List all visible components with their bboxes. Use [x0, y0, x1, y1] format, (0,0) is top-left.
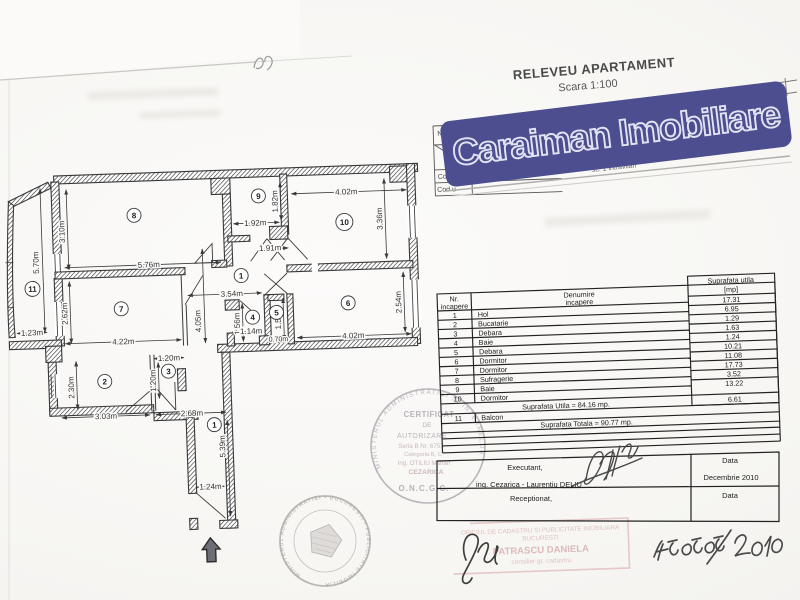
svg-text:0.70m: 0.70m [269, 336, 289, 344]
svg-text:BUCURESTI: BUCURESTI [522, 534, 559, 542]
svg-text:3.54m: 3.54m [221, 289, 244, 299]
svg-text:consilier gr. cadastru: consilier gr. cadastru [511, 557, 571, 566]
svg-text:Decembrie 2010: Decembrie 2010 [703, 473, 758, 482]
svg-text:3.52: 3.52 [727, 369, 741, 378]
svg-text:incapere: incapere [441, 301, 469, 311]
svg-text:incapere: incapere [565, 297, 593, 307]
svg-text:Categoria B, C: Categoria B, C [404, 452, 442, 458]
svg-text:Debara: Debara [479, 346, 503, 356]
svg-text:PATRASCU DANIELA: PATRASCU DANIELA [493, 543, 590, 557]
svg-text:Data: Data [722, 456, 739, 465]
svg-text:1: 1 [453, 311, 457, 320]
svg-text:3.10m: 3.10m [57, 220, 67, 243]
svg-text:7: 7 [455, 367, 459, 376]
svg-text:CEZARICA: CEZARICA [408, 469, 443, 476]
svg-text:8: 8 [455, 376, 459, 385]
svg-text:1.91m: 1.91m [259, 243, 282, 253]
svg-text:1.20m: 1.20m [158, 353, 181, 363]
svg-text:DE: DE [422, 422, 432, 429]
svg-text:5.39m: 5.39m [218, 435, 228, 458]
svg-text:2.68m: 2.68m [181, 409, 204, 419]
svg-text:1.63: 1.63 [725, 323, 739, 332]
svg-text:1.82m: 1.82m [270, 190, 280, 213]
svg-text:13.22: 13.22 [725, 378, 743, 388]
svg-text:17.73: 17.73 [724, 360, 742, 370]
svg-text:4.02m: 4.02m [335, 187, 358, 197]
svg-text:Suprafata Totala = 90.77 mp.: Suprafata Totala = 90.77 mp. [540, 417, 633, 429]
svg-text:Bucatarie: Bucatarie [478, 318, 509, 328]
svg-text:Baie: Baie [480, 384, 495, 393]
svg-text:1.14m: 1.14m [240, 326, 263, 336]
svg-text:10: 10 [454, 394, 462, 403]
svg-text:11.08: 11.08 [724, 350, 742, 360]
svg-text:5: 5 [454, 348, 458, 357]
svg-text:4.22m: 4.22m [112, 337, 135, 347]
svg-text:2.54m: 2.54m [394, 291, 404, 314]
svg-text:4.05m: 4.05m [193, 310, 203, 333]
svg-text:Seria B Nr. 6757: Seria B Nr. 6757 [398, 443, 444, 450]
svg-text:Executant,: Executant, [507, 463, 542, 472]
svg-text:3: 3 [453, 329, 457, 338]
svg-text:5.76m: 5.76m [137, 260, 160, 270]
svg-text:Data: Data [722, 491, 739, 500]
svg-text:Baie: Baie [479, 337, 494, 346]
svg-text:Hol: Hol [478, 310, 489, 319]
svg-text:3.36m: 3.36m [375, 207, 385, 230]
svg-text:6.61: 6.61 [728, 394, 742, 403]
svg-text:1.24m: 1.24m [199, 482, 222, 492]
svg-text:Balcon: Balcon [481, 412, 503, 422]
svg-text:2: 2 [453, 320, 457, 329]
svg-text:2.62m: 2.62m [60, 302, 70, 325]
svg-text:17.31: 17.31 [722, 295, 740, 305]
svg-text:4.02m: 4.02m [342, 331, 365, 341]
svg-text:10: 10 [340, 218, 350, 227]
svg-text:6: 6 [454, 357, 458, 366]
svg-text:1.20m: 1.20m [148, 369, 158, 392]
svg-text:Sufragerie: Sufragerie [480, 374, 513, 384]
svg-text:4: 4 [454, 339, 458, 348]
svg-text:9: 9 [455, 385, 459, 394]
svg-text:5.70m: 5.70m [31, 251, 41, 274]
svg-text:AUTORIZARE: AUTORIZARE [397, 433, 447, 440]
svg-text:11: 11 [454, 414, 462, 423]
svg-text:1.23m: 1.23m [21, 328, 44, 338]
svg-text:Suprafata Utila = 84.16 mp.: Suprafata Utila = 84.16 mp. [522, 399, 610, 411]
svg-text:ing. Cezarica - Laurentiu DELI: ing. Cezarica - Laurentiu DELIU [476, 480, 582, 489]
svg-text:1.29: 1.29 [725, 313, 739, 322]
svg-text:10.21: 10.21 [724, 341, 742, 351]
svg-text:Debara: Debara [478, 328, 502, 338]
svg-text:6.95: 6.95 [725, 304, 739, 313]
svg-text:3.03m: 3.03m [95, 412, 118, 422]
svg-text:Receptionat,: Receptionat, [510, 494, 552, 503]
svg-text:1.24: 1.24 [726, 332, 740, 341]
svg-text:Dormitor: Dormitor [481, 393, 509, 403]
svg-text:11: 11 [28, 285, 37, 294]
svg-text:[mp]: [mp] [724, 284, 738, 293]
svg-text:2.30m: 2.30m [67, 376, 77, 399]
svg-text:1.92m: 1.92m [244, 218, 267, 228]
